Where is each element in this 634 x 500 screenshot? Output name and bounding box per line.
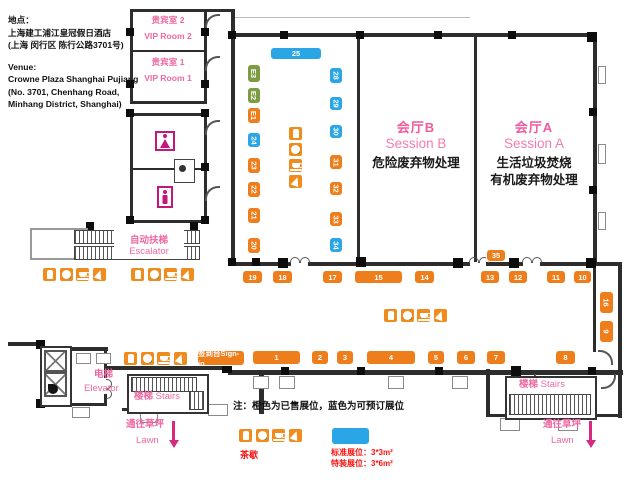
booth-31: 31 <box>329 154 343 170</box>
booth-35: 35 <box>486 249 506 262</box>
door-jamb <box>76 353 91 364</box>
column <box>201 109 209 117</box>
wall <box>131 50 204 52</box>
column <box>511 366 521 376</box>
door-arc-icon <box>205 14 220 29</box>
escalator-rail <box>30 228 32 260</box>
snack-icon <box>255 428 270 443</box>
door-arc-icon <box>598 350 613 365</box>
column <box>201 216 209 224</box>
column <box>201 163 209 171</box>
booth-23: 23 <box>247 157 261 174</box>
booth-16: 16 <box>599 291 614 314</box>
wall <box>231 9 235 266</box>
wall <box>130 113 208 116</box>
lawn-right-label-en: Lawn <box>551 436 574 446</box>
vip-room1-label-cn: 贵宾室 1 <box>152 58 185 67</box>
floor-plan: 地点： 上海建工浦江皇冠假日酒店 (上海 闵行区 陈行公路3701号) Venu… <box>0 0 634 500</box>
door-jamb <box>96 353 111 364</box>
stairs-left-label-en: Stairs <box>156 391 180 402</box>
snack-icon <box>288 142 303 157</box>
booth-5: 5 <box>427 350 445 365</box>
cake-icon <box>92 267 107 282</box>
booth-18: 18 <box>272 270 293 284</box>
double-door-icon <box>522 257 542 263</box>
wall <box>130 9 133 104</box>
door-jamb <box>72 407 90 418</box>
elevator-car-icon <box>44 350 67 372</box>
booth-9: 9 <box>599 320 614 343</box>
column <box>589 186 597 194</box>
session-a-topic1: 生活垃圾焚烧 <box>496 157 571 170</box>
legend-note: 注：橙色为已售展位，蓝色为可预订展位 <box>233 402 404 412</box>
column <box>589 108 597 116</box>
wall <box>130 9 208 12</box>
drink-icon <box>238 428 253 443</box>
stairs-right-label-cn: 楼梯 <box>519 379 538 390</box>
escalator-label-cn: 自动扶梯 <box>130 232 168 246</box>
lawn-left-arrow-icon <box>172 421 175 441</box>
column <box>588 367 596 375</box>
column <box>356 31 364 39</box>
column <box>586 258 596 268</box>
double-door-icon <box>290 257 310 263</box>
lawn-right-arrow-icon <box>589 421 592 441</box>
column <box>278 258 288 268</box>
booth-11: 11 <box>546 270 566 284</box>
booth-29: 29 <box>329 96 343 111</box>
snack-icon <box>140 351 155 366</box>
booth-21: 21 <box>247 207 261 224</box>
door-arc-icon <box>205 56 220 71</box>
female-toilet-icon <box>155 131 175 151</box>
venue-address: 地点： 上海建工浦江皇冠假日酒店 (上海 闵行区 陈行公路3701号) Venu… <box>8 14 138 111</box>
address-en-line2: (No. 3701, Chenhang Road, <box>8 86 138 99</box>
booth-13: 13 <box>480 270 500 284</box>
address-cn-label: 地点： <box>8 14 138 27</box>
booth-8: 8 <box>555 350 576 365</box>
sign-in-desk: 签到台Sign-in <box>197 350 245 366</box>
column <box>357 367 365 375</box>
wall <box>593 266 596 352</box>
stairs-right-label: 楼梯 Stairs <box>519 380 565 390</box>
cake-icon <box>288 428 303 443</box>
booth-30: 30 <box>329 124 343 139</box>
booth-E1: E1 <box>247 107 261 124</box>
column <box>126 28 134 36</box>
booth-34: 34 <box>329 237 343 253</box>
column <box>280 31 288 39</box>
stairs-left-label: 楼梯 Stairs <box>134 392 180 402</box>
door-arc-icon <box>205 186 220 201</box>
booth-25: 25 <box>270 47 322 60</box>
column <box>252 258 260 266</box>
cake-icon <box>173 351 188 366</box>
booth-20: 20 <box>247 237 261 254</box>
wall <box>486 369 490 417</box>
column <box>228 31 236 39</box>
legend-special-booth: 特装展位：3*6m² <box>331 460 393 468</box>
wall <box>68 347 108 351</box>
booth-22: 22 <box>247 181 261 198</box>
booth-7: 7 <box>486 350 506 365</box>
session-a-label-cn: 会厅A <box>515 121 553 135</box>
wall <box>234 17 470 18</box>
coffee-icon <box>288 158 303 173</box>
booth-1: 1 <box>252 350 301 365</box>
vip-room1-label-en: VIP Room 1 <box>144 74 192 83</box>
column <box>126 80 134 88</box>
column <box>508 31 516 39</box>
cake-icon <box>180 267 195 282</box>
column <box>453 258 463 268</box>
elevator-label-en: Elevator <box>84 384 119 394</box>
wall <box>357 37 360 262</box>
coffee-icon <box>156 351 171 366</box>
drink-icon <box>130 267 145 282</box>
booth-12: 12 <box>508 270 528 284</box>
booth-14: 14 <box>414 270 435 284</box>
escalator-label: 自动扶梯 Escalator <box>114 229 184 259</box>
wall <box>130 101 207 104</box>
column <box>587 32 597 42</box>
column <box>281 367 289 375</box>
booth-E3: E3 <box>247 64 261 83</box>
coffee-icon <box>163 267 178 282</box>
wall <box>8 342 38 346</box>
booth-33: 33 <box>329 211 343 227</box>
column <box>201 28 209 36</box>
address-en-line3: Minhang District, Shanghai) <box>8 98 138 111</box>
session-a-label-en: Session A <box>504 137 564 151</box>
column <box>126 109 134 117</box>
escalator-label-en: Escalator <box>129 246 169 257</box>
window <box>598 144 606 164</box>
column <box>509 258 519 268</box>
session-b-label-en: Session B <box>386 137 447 151</box>
booth-2: 2 <box>311 350 329 365</box>
door-jamb <box>253 376 269 389</box>
machine-icon <box>48 384 58 394</box>
session-a-topic2: 有机废弃物处理 <box>490 174 578 187</box>
booth-10: 10 <box>573 270 592 284</box>
drink-icon <box>383 308 398 323</box>
drink-icon <box>288 126 303 141</box>
wall <box>618 262 622 418</box>
legend-available-swatch <box>332 428 369 444</box>
snack-icon <box>59 267 74 282</box>
booth-24: 24 <box>247 132 261 148</box>
male-toilet-icon <box>157 186 173 208</box>
stairs-treads <box>189 391 204 410</box>
door-jamb <box>388 376 404 389</box>
snack-icon <box>400 308 415 323</box>
elevator-label-cn: 电梯 <box>94 370 113 380</box>
door-arc-icon <box>205 120 220 135</box>
booth-15: 15 <box>354 270 403 284</box>
door-arc-icon <box>601 374 616 389</box>
column <box>201 80 209 88</box>
stairs-treads <box>131 377 197 392</box>
address-en-label: Venue: <box>8 61 138 74</box>
address-cn-line2: (上海 闵行区 陈行公路3701号) <box>8 39 138 52</box>
booth-17: 17 <box>322 270 343 284</box>
legend-standard-booth: 标准展位：3*3m² <box>331 449 393 457</box>
wall <box>207 9 234 12</box>
cake-icon <box>433 308 448 323</box>
booth-6: 6 <box>456 350 476 365</box>
lawn-right-label-cn: 通往草坪 <box>543 420 581 430</box>
door-jamb <box>452 376 468 389</box>
booth-4: 4 <box>366 350 416 365</box>
sink-icon <box>174 159 195 183</box>
wall <box>234 33 596 37</box>
booth-28: 28 <box>329 67 343 84</box>
wall <box>474 37 477 262</box>
legend-tea-label: 茶歇 <box>240 451 258 460</box>
column <box>356 257 366 267</box>
lawn-left-label-en: Lawn <box>136 436 159 446</box>
vip-room2-label-en: VIP Room 2 <box>144 32 192 41</box>
column <box>435 367 443 375</box>
drink-icon <box>42 267 57 282</box>
stairs-right-label-en: Stairs <box>541 379 565 390</box>
booth-E2: E2 <box>247 87 261 104</box>
stairs-left-label-cn: 楼梯 <box>134 391 153 402</box>
cake-icon <box>288 174 303 189</box>
stairs-treads <box>509 394 591 415</box>
coffee-icon <box>271 428 286 443</box>
coffee-icon <box>416 308 431 323</box>
session-b-topic: 危险废弃物处理 <box>372 157 460 170</box>
column <box>126 216 134 224</box>
booth-3: 3 <box>336 350 354 365</box>
lawn-left-label-cn: 通往草坪 <box>126 420 164 430</box>
column <box>434 31 442 39</box>
column <box>190 222 198 230</box>
vip-room2-label-cn: 贵宾室 2 <box>152 16 185 25</box>
address-en-line1: Crowne Plaza Shanghai Pujiang <box>8 73 138 86</box>
session-b-label-cn: 会厅B <box>397 121 435 135</box>
booth-19: 19 <box>242 270 263 284</box>
wall <box>593 33 597 266</box>
snack-icon <box>147 267 162 282</box>
address-cn-line1: 上海建工浦江皇冠假日酒店 <box>8 27 138 40</box>
window <box>598 212 606 230</box>
drink-icon <box>123 351 138 366</box>
column <box>228 258 236 266</box>
booth-32: 32 <box>329 181 343 196</box>
door-jamb <box>208 404 228 416</box>
coffee-icon <box>75 267 90 282</box>
door-jamb <box>279 376 295 389</box>
window <box>598 66 606 84</box>
